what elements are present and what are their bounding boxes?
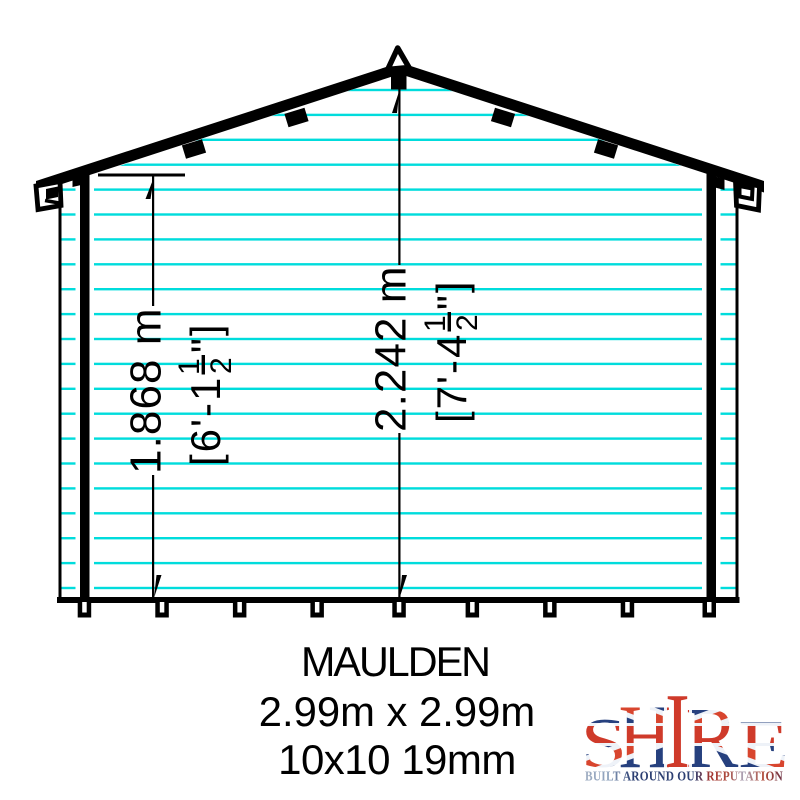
svg-text:10x10 19mm: 10x10 19mm [278,736,516,783]
svg-text:1: 1 [173,358,206,375]
svg-text:1: 1 [419,315,452,332]
svg-text:"]: "] [428,279,475,310]
svg-text:2: 2 [451,314,484,331]
svg-text:[6'-1: [6'-1 [182,376,229,466]
svg-text:BUILT AROUND OUR REPUTATION: BUILT AROUND OUR REPUTATION [585,769,783,784]
svg-text:MAULDEN: MAULDEN [301,639,489,685]
svg-text:2: 2 [205,357,238,374]
svg-text:2.99m x 2.99m: 2.99m x 2.99m [259,688,535,735]
svg-text:[7'-4: [7'-4 [428,333,475,423]
svg-text:1.868 m: 1.868 m [122,307,171,474]
svg-text:2.242 m: 2.242 m [367,265,416,432]
svg-text:"]: "] [182,322,229,353]
